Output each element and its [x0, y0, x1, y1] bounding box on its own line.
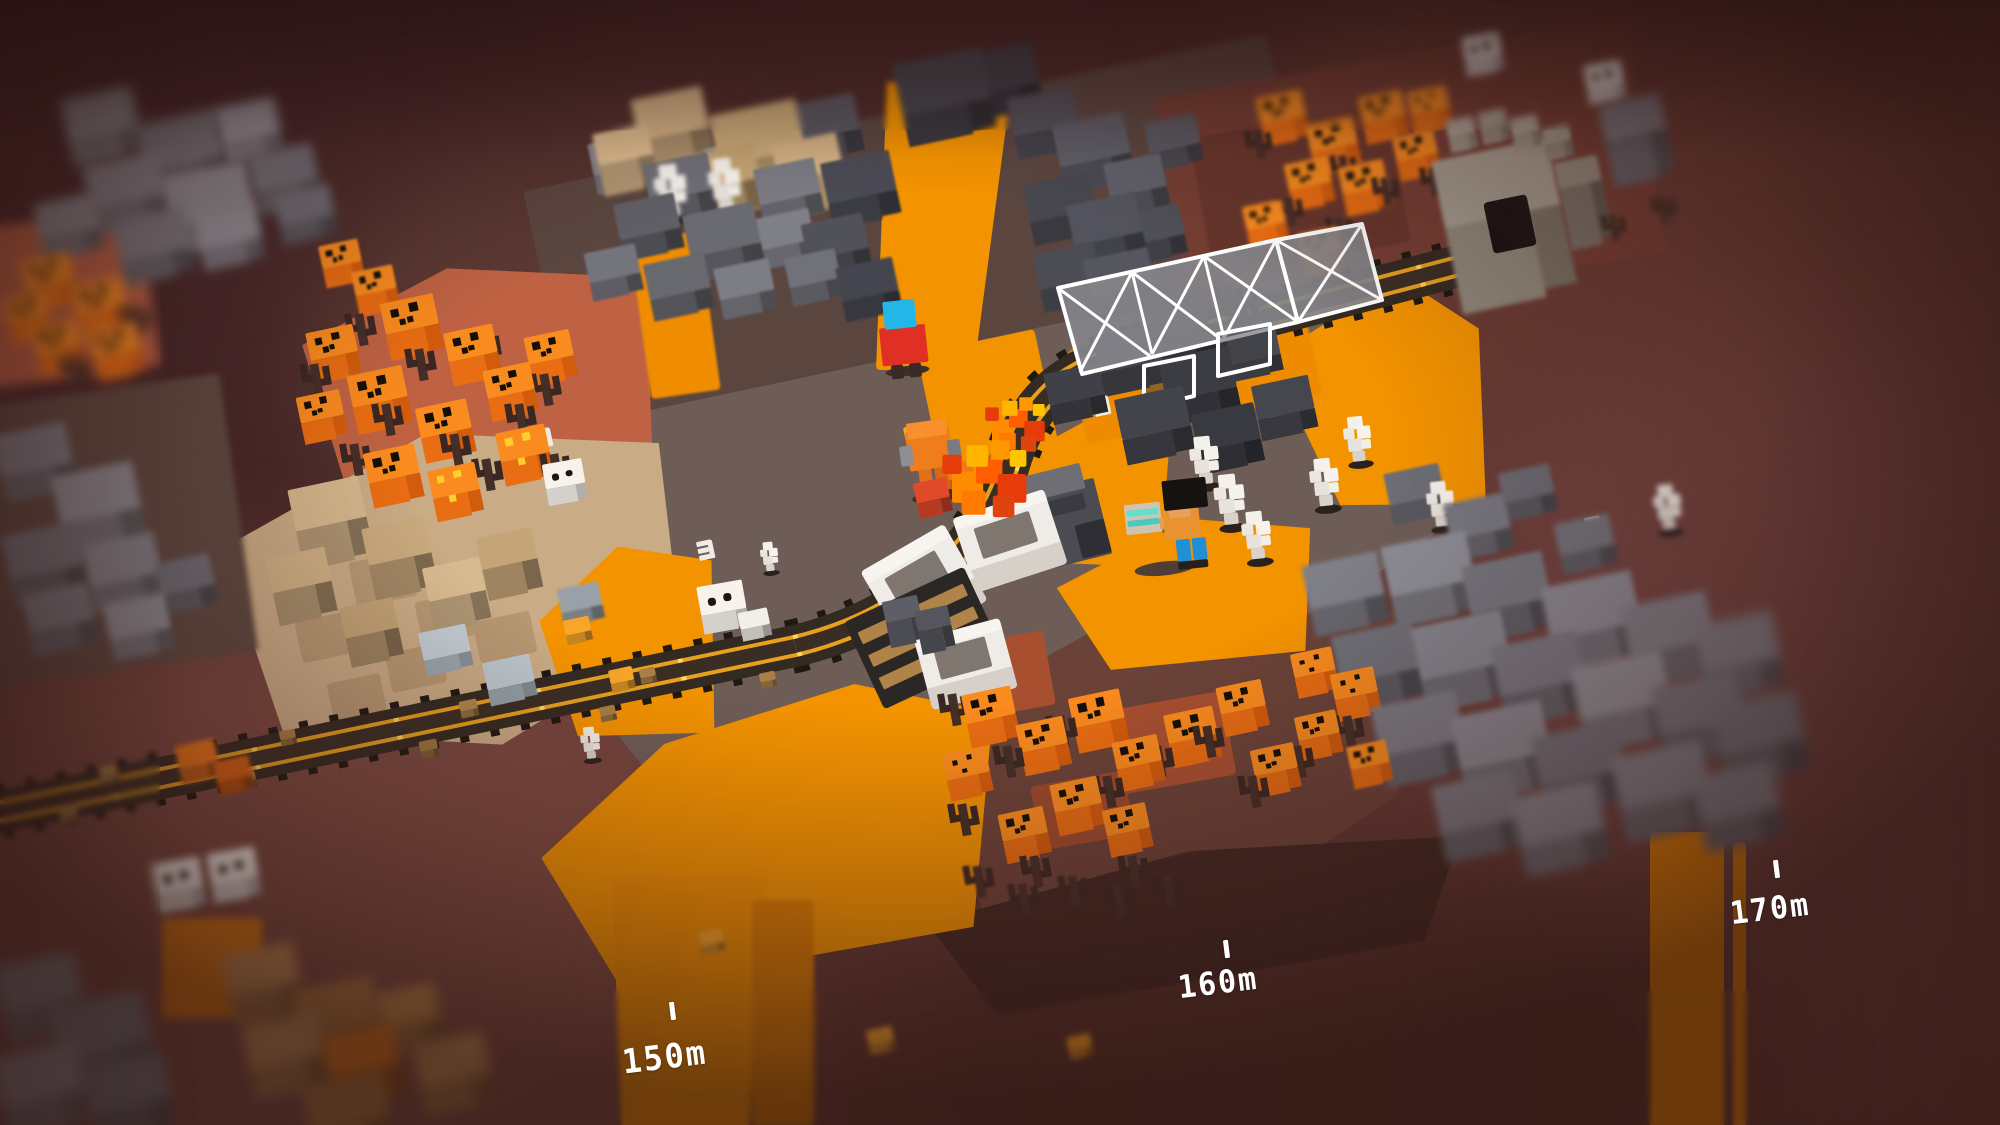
crate-figure-part [879, 324, 929, 367]
pumpkin-eye [97, 335, 106, 344]
pumpkin-eye [1367, 746, 1375, 754]
flame-voxel [985, 407, 999, 421]
pumpkin-eye [331, 331, 340, 340]
pumpkin-eye [1400, 141, 1408, 149]
pumpkin-eye [390, 452, 400, 462]
skeleton-enemy [1650, 483, 1686, 540]
pumpkin-mouth [366, 284, 371, 289]
cube-side [171, 247, 195, 273]
cactus-arm [504, 403, 513, 418]
crate-dot [1415, 97, 1420, 102]
pumpkin [1049, 776, 1107, 837]
cactus-arm [1152, 875, 1161, 890]
pumpkin-eye [1258, 754, 1266, 762]
pumpkin-mouth [48, 341, 54, 347]
pumpkin [296, 389, 349, 445]
pumpkin-eye [508, 369, 517, 378]
pumpkin-crate [942, 746, 995, 802]
pumpkin-mouth [1134, 753, 1140, 759]
crate-dot [1300, 660, 1305, 665]
pumpkin-eye [40, 332, 49, 341]
cactus-arm [947, 803, 956, 818]
rock-block [1066, 1033, 1094, 1060]
pumpkin-eye [1172, 719, 1181, 728]
pumpkin-eye [548, 336, 557, 345]
pumpkin-mouth [1271, 760, 1277, 766]
skeleton-block [1323, 468, 1339, 483]
pumpkin-eye [56, 326, 65, 335]
cube-side [718, 941, 726, 950]
pumpkin-mouth [25, 310, 30, 315]
pumpkin-mouth [338, 255, 343, 260]
skeleton-block [729, 184, 741, 196]
pumpkin-eye [1125, 809, 1133, 817]
pumpkin-eye [390, 308, 400, 318]
cactus-arm [299, 363, 308, 378]
rock-block [458, 698, 479, 719]
pumpkin-mouth [1360, 178, 1366, 184]
pumpkin-mouth [1039, 736, 1045, 742]
cactus-arm [1117, 855, 1126, 870]
pumpkin-mouth [1309, 729, 1314, 734]
cactus-arm [962, 865, 971, 880]
pumpkin-eye [304, 401, 312, 409]
cube-side [694, 287, 715, 310]
pumpkin-mouth [1094, 710, 1101, 717]
pumpkin [88, 322, 146, 383]
bone-pile [696, 538, 720, 564]
rock-block [418, 738, 439, 759]
ghost-eye [234, 860, 243, 869]
pumpkin-eye [491, 375, 500, 384]
cactus-arm [371, 403, 380, 418]
flame-voxel [962, 491, 986, 515]
pumpkin-eye [1224, 692, 1233, 701]
cube-side [458, 651, 474, 668]
crate-dot [1309, 667, 1314, 672]
pumpkin-mouth [1354, 181, 1360, 187]
player-character-part [1176, 539, 1192, 562]
pumpkin-mouth [468, 344, 475, 351]
pumpkin-eye [1381, 96, 1389, 104]
ghost-eye [1483, 42, 1490, 49]
pumpkin-eye [1058, 789, 1067, 798]
pumpkin-mouth [1181, 729, 1188, 736]
pumpkin-eye [532, 342, 541, 351]
pumpkin-eye [325, 249, 333, 257]
rock-block [698, 928, 726, 955]
skeleton-block [1251, 547, 1266, 559]
pumpkin-mouth [367, 391, 374, 398]
pumpkin-eye [1041, 723, 1050, 732]
miner-npc-part [899, 445, 915, 467]
skeleton-enemy [1306, 457, 1344, 518]
ghost-eye [218, 865, 227, 874]
pumpkin-mouth [323, 346, 329, 352]
skeleton-enemy [578, 726, 603, 766]
pumpkin [1215, 679, 1270, 737]
pumpkin-eye [1249, 210, 1257, 218]
rock-block [58, 804, 79, 825]
cactus-arm [1419, 167, 1427, 181]
pumpkin-eye [1302, 721, 1310, 729]
skeleton-block [723, 168, 740, 185]
skeleton-block [1662, 518, 1676, 529]
cactus-arm [1329, 155, 1337, 169]
pumpkin-window [449, 494, 457, 502]
pumpkin-mouth [89, 300, 96, 307]
skeleton-block [1228, 484, 1245, 500]
pumpkin-eye [372, 458, 382, 468]
cube-side [1494, 527, 1515, 550]
player-character-part [1191, 537, 1207, 560]
cactus-arm [937, 693, 946, 708]
cactus-arm [1019, 855, 1028, 870]
pumpkin-mouth [1073, 796, 1079, 802]
skeleton-block [1234, 499, 1245, 510]
pumpkin-mouth [372, 282, 377, 287]
pumpkin-eye [504, 437, 513, 446]
skeleton-enemy [1340, 415, 1376, 472]
pumpkin-eye [373, 271, 381, 279]
rock-block [759, 671, 778, 689]
skeleton-block [766, 564, 775, 571]
skeleton-block [1361, 439, 1371, 449]
cube-side [591, 605, 605, 620]
flame-voxel [1033, 404, 1045, 416]
skeleton-block [1352, 450, 1366, 461]
pumpkin-mouth [19, 312, 24, 317]
cube-side [292, 738, 297, 744]
rock-block [213, 755, 255, 797]
player-character [1121, 471, 1231, 579]
pumpkin-eye [1273, 749, 1281, 757]
pumpkin-mouth [1014, 828, 1020, 834]
pumpkin-mouth [333, 257, 338, 262]
skeleton-block [1208, 460, 1219, 471]
ghost-eye [707, 597, 716, 606]
cube-side [319, 215, 338, 236]
pumpkin-eye [1353, 750, 1361, 758]
pumpkin-eye [1263, 206, 1271, 214]
pumpkin-mouth [461, 347, 468, 354]
crate-dot [966, 754, 972, 760]
pumpkin-eye [1077, 703, 1087, 713]
pumpkin-eye [97, 285, 106, 294]
flame-voxel [966, 445, 988, 467]
pumpkin-eye [359, 276, 367, 284]
pumpkin-eye [1366, 101, 1374, 109]
skeleton-enemy [758, 541, 781, 578]
pumpkin-mouth [546, 348, 552, 354]
pumpkin-eye [1024, 729, 1033, 738]
pumpkin-mouth [39, 274, 45, 280]
ghost-enemy [1583, 59, 1627, 105]
pumpkin-mouth [1407, 149, 1412, 154]
crate-dot [962, 768, 968, 774]
ghost-enemy [1461, 31, 1505, 77]
pumpkin-eye [408, 302, 418, 312]
pumpkin-mouth [112, 342, 118, 348]
pumpkin-eye [1314, 129, 1323, 138]
pumpkin-eye [1280, 96, 1289, 105]
rock-block [1114, 385, 1196, 465]
pumpkin-eye [469, 332, 478, 341]
rock-block [1301, 551, 1390, 637]
pumpkin-mouth [979, 709, 986, 716]
pumpkin-eye [80, 290, 89, 299]
pumpkin-eye [521, 432, 530, 441]
crate-dot [1354, 674, 1360, 680]
pumpkin-mouth [1033, 738, 1039, 744]
cactus-arm [1192, 725, 1201, 740]
pumpkin-mouth [329, 344, 335, 350]
pumpkin-mouth [1305, 174, 1311, 180]
rock-block [639, 667, 658, 685]
pumpkin-mouth [540, 351, 546, 357]
rock-block [98, 764, 119, 785]
cactus-arm [404, 348, 413, 363]
pumpkin-mouth [1262, 216, 1267, 221]
ghost-eye [1605, 70, 1612, 77]
skeleton-block [1260, 535, 1271, 546]
crate-figure-part [882, 299, 917, 330]
pumpkin-eye [1006, 819, 1015, 828]
pumpkin-mouth [1374, 110, 1380, 116]
pumpkin-eye [1022, 813, 1031, 822]
rock-block [1251, 375, 1319, 441]
pumpkin-mouth [382, 468, 389, 475]
pumpkin-mouth [434, 423, 441, 430]
pumpkin-eye [319, 396, 327, 404]
pumpkin-eye [1240, 686, 1249, 695]
ghost-enemy [542, 458, 589, 506]
cactus-arm [1244, 130, 1252, 144]
pumpkin-eye [376, 374, 387, 385]
pumpkin-mouth [506, 382, 512, 388]
flame-voxel [942, 455, 961, 474]
pumpkin-eye [424, 413, 434, 423]
cactus-arm [992, 745, 1001, 760]
pumpkin-mouth [1067, 798, 1073, 804]
player-character-part [1178, 559, 1209, 570]
pumpkin-mouth [1272, 111, 1278, 117]
cube-side [772, 680, 777, 686]
pumpkin-mouth [1266, 763, 1272, 769]
cube-side [154, 627, 175, 650]
rock-block [608, 666, 636, 693]
ghost-enemy [151, 856, 207, 913]
skeleton-block [1255, 521, 1271, 536]
rock-block [599, 705, 618, 723]
pumpkin-mouth [1278, 108, 1284, 114]
pumpkin-mouth [441, 420, 448, 427]
cube-side [1599, 545, 1618, 566]
crate-figure-part [909, 362, 922, 377]
ghost-enemy [206, 846, 262, 903]
skeleton-block [1203, 446, 1219, 461]
pumpkin-mouth [1323, 138, 1329, 144]
cube-side [628, 679, 636, 688]
flame-voxel [990, 440, 1009, 459]
pumpkin-eye [1120, 747, 1129, 756]
pumpkin-eye [114, 329, 123, 338]
pumpkin-eye [1346, 172, 1355, 181]
pumpkin-eye [1414, 136, 1422, 144]
pumpkin-mouth [374, 388, 381, 395]
flame-voxel [993, 496, 1015, 518]
pumpkin-eye [26, 299, 34, 307]
rock-block [866, 1026, 897, 1056]
pumpkin-eye [357, 380, 368, 391]
cube-side [584, 630, 593, 640]
cactus-arm [1371, 177, 1379, 191]
cube-side [887, 1040, 896, 1050]
rock-block [221, 941, 306, 1026]
pumpkin-eye [1110, 814, 1118, 822]
pumpkin-mouth [1300, 177, 1306, 183]
crate-figure-part [891, 364, 904, 379]
pumpkin-house [427, 462, 485, 523]
pumpkin-eye [314, 337, 323, 346]
pumpkin-eye [452, 337, 461, 346]
rock-block [279, 729, 298, 747]
cube-side [1086, 1046, 1094, 1055]
pumpkin-eye [1292, 168, 1300, 176]
skeleton-block [1328, 482, 1339, 493]
cactus-arm [1057, 875, 1066, 890]
pumpkin-eye [47, 259, 56, 268]
pumpkin-window [518, 457, 526, 465]
pumpkin-eye [1075, 783, 1084, 792]
flame [952, 450, 1036, 522]
pumpkin-mouth [389, 465, 396, 472]
pumpkin-eye [339, 245, 347, 253]
flame-voxel [1002, 401, 1017, 416]
flame-voxel [1010, 450, 1027, 467]
crate-dot [1340, 680, 1346, 686]
pumpkin-mouth [500, 384, 506, 390]
skeleton-block [1356, 425, 1371, 439]
rock-block [563, 616, 594, 646]
rock-block [737, 607, 772, 642]
cube-side [664, 227, 685, 250]
crate-dot [952, 760, 958, 766]
cube-side [652, 676, 657, 682]
pumpkin-mouth [1020, 825, 1026, 831]
pumpkin-eye [1307, 163, 1315, 171]
pumpkin-mouth [406, 316, 413, 323]
game-world [0, 0, 2000, 1125]
pumpkin-mouth [986, 706, 993, 713]
cube-side [84, 227, 105, 250]
cube-side [759, 290, 778, 311]
pumpkin-mouth [1315, 727, 1320, 732]
flame-voxel [1019, 397, 1033, 411]
cube-side [113, 775, 119, 782]
pumpkin-mouth [45, 272, 51, 278]
pumpkin-eye [442, 407, 452, 417]
player-character-part [1161, 477, 1208, 511]
skeleton-enemy [1238, 510, 1276, 571]
crate-figure [870, 293, 978, 381]
rock-block [1510, 780, 1611, 878]
pumpkin-mouth [1413, 147, 1418, 152]
pumpkin-mouth [54, 338, 60, 344]
pumpkin-eye [1331, 123, 1340, 132]
cactus-arm [1600, 215, 1607, 227]
pumpkin-eye [987, 694, 996, 703]
pumpkin-mouth [1366, 756, 1371, 761]
cactus-arm [1237, 775, 1246, 790]
pumpkin-eye [1264, 102, 1273, 111]
skeleton-block [675, 190, 687, 202]
skeleton-block [593, 743, 600, 750]
cactus-arm [1650, 197, 1657, 209]
cactus-arm [59, 355, 68, 370]
rock-block [913, 477, 954, 519]
ghost-eye [163, 875, 172, 884]
skeleton-block [772, 556, 779, 563]
pumpkin-eye [12, 304, 20, 312]
pumpkin-mouth [399, 319, 406, 326]
skeleton-block [1666, 493, 1681, 507]
pumpkin-mouth [312, 410, 318, 416]
game-viewport[interactable]: 150m 160m 170m [0, 0, 2000, 1125]
cube-side [73, 815, 79, 822]
crate-dot [1313, 654, 1318, 659]
pumpkin-eye [970, 699, 979, 708]
cactus-arm [339, 443, 348, 458]
pumpkin-mouth [1087, 713, 1094, 720]
pumpkin-mouth [1329, 136, 1335, 142]
pumpkin-mouth [96, 297, 103, 304]
cube-side [199, 585, 218, 606]
cactus-arm [1007, 883, 1016, 898]
cactus-arm [119, 305, 128, 320]
pumpkin-eye [453, 469, 462, 478]
pumpkin-mouth [1238, 698, 1244, 704]
cactus-arm [439, 433, 448, 448]
pumpkin-mouth [1123, 820, 1129, 826]
cube-side [473, 709, 479, 716]
skeleton-block [1319, 494, 1334, 506]
cube-side [612, 714, 617, 720]
pumpkin-eye [436, 475, 445, 484]
cube-side [244, 237, 265, 260]
pumpkin-mouth [1379, 107, 1385, 113]
pumpkin-mouth [317, 407, 323, 413]
skeleton-block [1671, 507, 1681, 517]
pumpkin-eye [1316, 716, 1324, 724]
pumpkin-mouth [1361, 758, 1366, 763]
cube-side [522, 681, 538, 698]
pumpkin-eye [1136, 741, 1145, 750]
skeleton-block [587, 751, 597, 759]
crate-dot [1428, 92, 1433, 97]
cactus-arm [1102, 885, 1111, 900]
ghost-eye [179, 870, 188, 879]
pumpkin-mouth [1118, 823, 1124, 829]
skeleton-block [669, 174, 686, 191]
pumpkin-eye [30, 265, 39, 274]
pumpkin [1102, 802, 1155, 858]
crate-dot [1350, 688, 1356, 694]
pumpkin-eye [1095, 697, 1105, 707]
rock-block [411, 1031, 496, 1116]
pumpkin-mouth [106, 344, 112, 350]
cube-side [433, 749, 439, 756]
